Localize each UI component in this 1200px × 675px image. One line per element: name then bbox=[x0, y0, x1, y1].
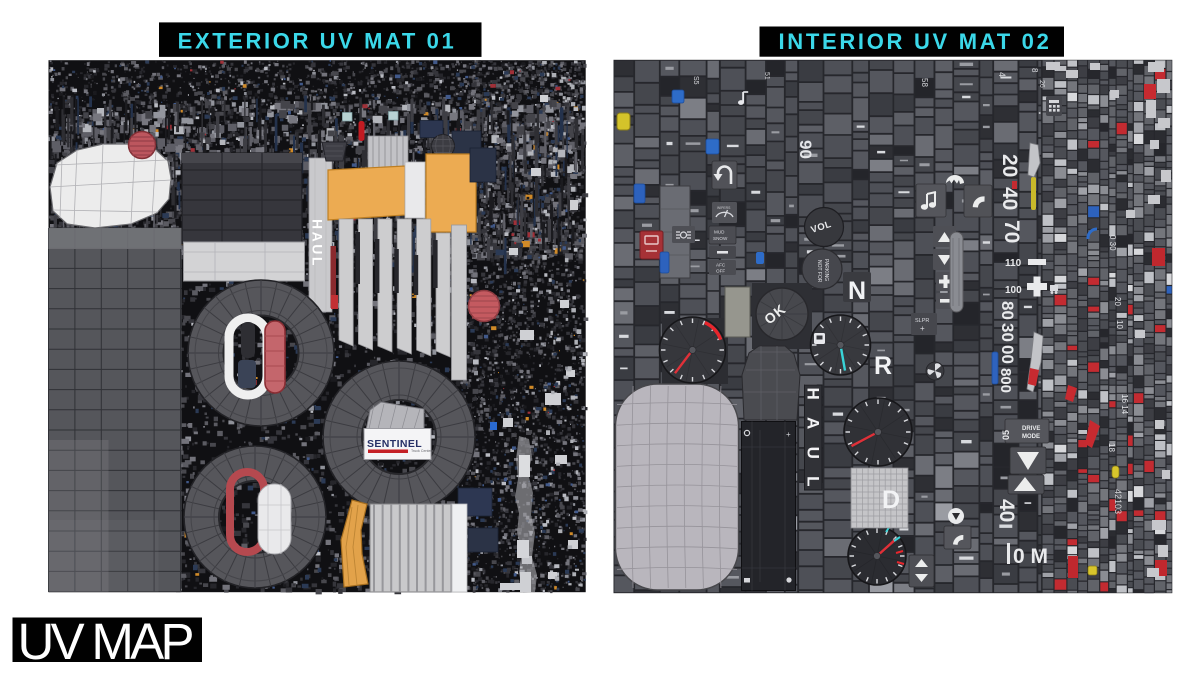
svg-text:0 30: 0 30 bbox=[1108, 235, 1117, 251]
svg-text:INTERIOR UV MAT 02: INTERIOR UV MAT 02 bbox=[778, 29, 1051, 54]
svg-text:UV MAP: UV MAP bbox=[18, 613, 195, 670]
svg-text:D: D bbox=[882, 486, 900, 514]
svg-text:WIPERS: WIPERS bbox=[717, 206, 731, 210]
svg-text:4: 4 bbox=[997, 72, 1007, 77]
svg-text:R: R bbox=[874, 352, 892, 380]
svg-text:20: 20 bbox=[998, 154, 1021, 177]
svg-text:20: 20 bbox=[1113, 297, 1122, 306]
svg-text:AFC: AFC bbox=[716, 263, 726, 268]
svg-text:40: 40 bbox=[995, 499, 1018, 522]
svg-text:800: 800 bbox=[997, 368, 1014, 393]
svg-text:EXTERIOR UV MAT 01: EXTERIOR UV MAT 01 bbox=[178, 29, 457, 54]
svg-text:58: 58 bbox=[920, 78, 929, 87]
svg-text:8: 8 bbox=[1030, 68, 1039, 73]
svg-text:10: 10 bbox=[1115, 320, 1124, 329]
svg-text:NOT FOR: NOT FOR bbox=[816, 260, 822, 283]
svg-text:51: 51 bbox=[763, 72, 770, 80]
svg-text:16 14: 16 14 bbox=[1120, 394, 1129, 415]
svg-text:OFF: OFF bbox=[716, 269, 725, 274]
svg-text:+: + bbox=[920, 324, 925, 333]
svg-text:Truck Centers: Truck Centers bbox=[411, 449, 434, 453]
svg-text:40: 40 bbox=[998, 187, 1021, 210]
svg-text:0 M: 0 M bbox=[1013, 545, 1048, 568]
svg-text:26: 26 bbox=[1038, 80, 1045, 88]
svg-text:S5: S5 bbox=[692, 76, 699, 85]
svg-text:80: 80 bbox=[998, 301, 1017, 320]
svg-text:100: 100 bbox=[1005, 285, 1022, 296]
svg-text:05: 05 bbox=[1001, 430, 1011, 440]
svg-text:HAUL: HAUL bbox=[310, 219, 326, 268]
svg-text:00: 00 bbox=[998, 345, 1017, 364]
svg-text:18: 18 bbox=[1107, 443, 1116, 452]
svg-text:SNOW: SNOW bbox=[713, 236, 728, 241]
svg-text:PARKING: PARKING bbox=[823, 259, 829, 281]
svg-text:MODE: MODE bbox=[1022, 434, 1040, 440]
svg-text:42103: 42103 bbox=[1113, 489, 1123, 514]
svg-text:110: 110 bbox=[1005, 258, 1022, 269]
svg-text:N: N bbox=[848, 277, 866, 305]
svg-text:90: 90 bbox=[796, 140, 815, 159]
svg-text:30: 30 bbox=[998, 323, 1017, 342]
svg-text:MUD: MUD bbox=[714, 230, 725, 235]
svg-text:+: + bbox=[786, 430, 791, 439]
svg-text:70: 70 bbox=[1000, 220, 1023, 243]
svg-text:DRIVE: DRIVE bbox=[1022, 426, 1040, 432]
